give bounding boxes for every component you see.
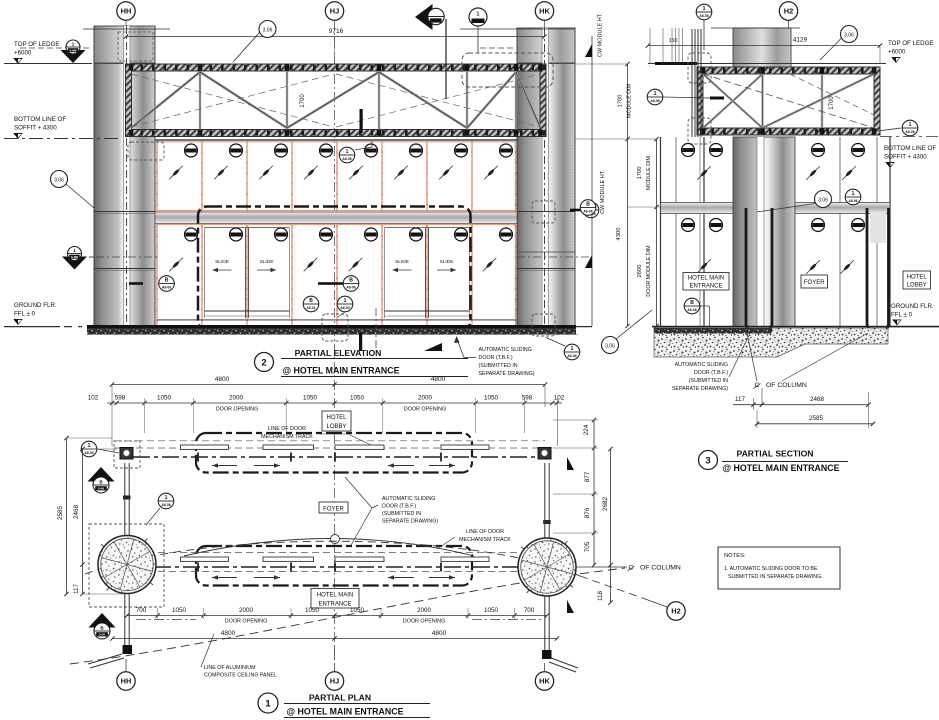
svg-text:3.06: 3.06 [54,178,64,184]
svg-text:(SUBMITTED IN: (SUBMITTED IN [689,378,728,384]
svg-text:OF COLUMN: OF COLUMN [766,382,807,389]
svg-text:FFL ± 0: FFL ± 0 [14,311,36,318]
svg-text:2000: 2000 [229,395,244,402]
svg-text:700: 700 [136,607,147,614]
svg-text:LOBBY: LOBBY [907,283,927,289]
svg-text:3.06: 3.06 [818,198,828,204]
svg-text:DOOR (T.B.F.): DOOR (T.B.F.) [479,355,513,361]
svg-text:A6-06: A6-06 [687,308,696,312]
svg-text:LINE OF DOOR: LINE OF DOOR [466,529,504,535]
svg-text:117: 117 [735,396,746,403]
svg-text:TOP OF LEDGE: TOP OF LEDGE [14,41,60,48]
svg-text:SEPARATE DRAWING): SEPARATE DRAWING) [672,386,728,392]
svg-text:4800: 4800 [215,376,230,383]
svg-text:1700: 1700 [300,94,306,108]
svg-text:SEPARATE DRAWING): SEPARATE DRAWING) [382,519,438,525]
svg-text:LOBBY: LOBBY [326,424,346,430]
svg-text:COMPOSITE CEILING PANEL: COMPOSITE CEILING PANEL [204,673,277,679]
svg-text:@ HOTEL MAIN ENTRANCE: @ HOTEL MAIN ENTRANCE [723,463,840,473]
svg-text:GROUND FLR.: GROUND FLR. [891,303,934,310]
svg-text:HH: HH [121,7,132,16]
svg-text:HJ: HJ [330,677,339,686]
svg-text:598: 598 [522,395,533,402]
svg-text:A6-06: A6-06 [342,157,351,161]
svg-text:2468: 2468 [810,396,825,403]
svg-text:1: 1 [165,495,168,501]
svg-text:1: 1 [72,41,75,46]
svg-text:HOTEL: HOTEL [326,415,347,421]
svg-text:CW MODULE HT.: CW MODULE HT. [600,170,606,214]
svg-text:1: 1 [909,122,912,128]
svg-text:HOTEL MAIN: HOTEL MAIN [688,276,724,282]
svg-text:1: 1 [571,346,574,352]
svg-text:117: 117 [73,583,80,594]
svg-text:PARTIAL PLAN: PARTIAL PLAN [309,693,371,703]
svg-text:SOFFIT + 4300: SOFFIT + 4300 [14,125,57,132]
svg-text:1: 1 [654,91,657,97]
svg-text:2000: 2000 [239,607,254,614]
svg-text:H2: H2 [671,607,680,616]
svg-text:SUBMITTED IN SEPARATE DRAWING.: SUBMITTED IN SEPARATE DRAWING. [728,574,823,580]
svg-text:A6-06: A6-06 [650,99,659,103]
svg-text:DOOR (T.B.F.): DOOR (T.B.F.) [694,370,728,376]
svg-text:SEPARATE DRAWING): SEPARATE DRAWING) [479,371,535,377]
svg-text:B: B [165,278,169,284]
svg-text:B: B [586,202,590,208]
svg-text:FOYER: FOYER [804,280,825,286]
svg-text:2585: 2585 [57,506,64,521]
svg-text:ENTRANCE: ENTRANCE [689,284,722,290]
svg-text:102: 102 [88,395,99,402]
svg-text:C: C [629,565,634,572]
svg-text:+6000: +6000 [888,49,906,56]
svg-text:@ HOTEL MAIN ENTRANCE: @ HOTEL MAIN ENTRANCE [283,366,400,376]
svg-text:3.06: 3.06 [605,344,615,350]
svg-text:DOOR OPENING: DOOR OPENING [216,407,259,413]
svg-text:SLIDE: SLIDE [215,259,229,265]
svg-text:GROUND FLR.: GROUND FLR. [14,302,57,309]
svg-text:4800: 4800 [221,630,236,637]
svg-text:LINE OF ALUMINIUM: LINE OF ALUMINIUM [204,665,256,671]
svg-text:A6-06: A6-06 [162,285,171,289]
svg-text:MECHANISM TRACK: MECHANISM TRACK [459,537,511,543]
svg-text:A5-31: A5-31 [306,306,315,310]
svg-text:SLIDE: SLIDE [440,259,454,265]
svg-text:1050: 1050 [484,607,499,614]
svg-text:HK: HK [539,677,550,686]
svg-text:4800: 4800 [431,376,446,383]
svg-text:MECHANISM TRACK: MECHANISM TRACK [261,434,313,440]
svg-text:4129: 4129 [793,37,808,44]
svg-text:1: 1 [703,6,706,12]
svg-text:BOTTOM LINE OF: BOTTOM LINE OF [14,116,66,123]
svg-text:2000: 2000 [418,395,433,402]
svg-text:A6-06: A6-06 [699,14,708,18]
svg-text:1: 1 [265,699,271,710]
svg-text:1. AUTOMATIC SLIDING DOOR TO B: 1. AUTOMATIC SLIDING DOOR TO BE [724,566,818,572]
svg-text:4800: 4800 [432,630,447,637]
svg-text:A6-06: A6-06 [161,503,170,507]
svg-text:HOTEL: HOTEL [907,275,928,281]
svg-text:B: B [309,298,313,304]
svg-text:5-05: 5-05 [99,633,105,637]
svg-text:1050: 1050 [157,395,172,402]
svg-text:A6-06: A6-06 [583,209,592,213]
svg-text:1: 1 [344,298,347,304]
svg-text:2000: 2000 [417,607,432,614]
svg-text:HOTEL MAIN: HOTEL MAIN [317,593,353,599]
svg-text:9716: 9716 [329,28,344,35]
svg-text:DOOR (T.B.F.): DOOR (T.B.F.) [382,504,416,510]
svg-text:1050: 1050 [350,395,365,402]
svg-text:HK: HK [539,7,550,16]
svg-text:CW MODULE HT.: CW MODULE HT. [598,13,604,57]
svg-text:1700: 1700 [637,167,643,180]
svg-text:DOOR MODULE DIM: DOOR MODULE DIM [646,245,652,296]
svg-text:1: 1 [852,191,855,197]
svg-text:700: 700 [524,607,535,614]
svg-text:NOTES:: NOTES: [724,553,746,559]
svg-text:DOOR OPENING: DOOR OPENING [404,407,447,413]
svg-text:BOTTOM LINE OF: BOTTOM LINE OF [884,145,936,152]
svg-text:1700: 1700 [618,95,624,108]
svg-text:2: 2 [261,358,266,369]
svg-text:SLIDE: SLIDE [395,259,409,265]
svg-text:118: 118 [597,590,604,601]
svg-text:4300: 4300 [616,228,622,241]
svg-text:A6-06: A6-06 [848,199,857,203]
svg-text:(SUBMITTED IN: (SUBMITTED IN [479,363,518,369]
svg-text:5-M6: 5-M6 [69,48,76,52]
svg-text:B: B [690,300,694,306]
svg-text:3: 3 [705,456,710,467]
svg-text:1: 1 [477,12,480,18]
svg-text:876: 876 [584,507,591,518]
svg-text:1050: 1050 [303,395,318,402]
svg-text:ENTRANCE: ENTRANCE [318,602,351,608]
svg-text:1050: 1050 [484,395,499,402]
svg-text:MODULE DIM: MODULE DIM [627,84,633,118]
svg-text:H2: H2 [784,7,793,16]
svg-text:3.06: 3.06 [263,28,273,34]
svg-text:3.06: 3.06 [844,33,854,39]
svg-text:A6-06: A6-06 [346,285,355,289]
svg-text:TOP OF LEDGE: TOP OF LEDGE [888,40,934,47]
svg-text:LINE OF DOOR: LINE OF DOOR [268,426,306,432]
svg-text:A6-06: A6-06 [905,130,914,134]
svg-text:DOOR OPENING: DOOR OPENING [403,619,446,625]
svg-text:PARTIAL SECTION: PARTIAL SECTION [736,449,813,459]
svg-text:102: 102 [554,395,565,402]
svg-text:5-06: 5-06 [98,487,104,491]
svg-text:PARTIAL ELEVATION: PARTIAL ELEVATION [295,348,382,358]
svg-text:A6-05: A6-05 [84,451,93,455]
svg-text:AUTOMATIC SLIDING: AUTOMATIC SLIDING [675,362,728,368]
svg-text:2585: 2585 [809,415,824,422]
svg-text:2600: 2600 [637,265,643,278]
svg-text:+6000: +6000 [14,50,32,57]
svg-text:2682: 2682 [602,497,609,512]
svg-text:598: 598 [115,395,126,402]
svg-text:1050: 1050 [350,607,365,614]
svg-text:HJ: HJ [330,7,339,16]
svg-text:5-M6: 5-M6 [71,255,78,259]
svg-text:A6-06: A6-06 [567,354,576,358]
svg-text:(SUBMITTED IN: (SUBMITTED IN [382,511,421,517]
svg-text:1: 1 [73,248,76,253]
svg-text:A6-09: A6-09 [340,306,349,310]
svg-text:FFL ± 0: FFL ± 0 [891,312,913,319]
svg-text:AUTOMATIC SLIDING: AUTOMATIC SLIDING [479,347,532,353]
svg-text:SLIDE: SLIDE [260,259,274,265]
svg-text:877: 877 [584,471,591,482]
svg-text:2468: 2468 [73,505,80,520]
svg-text:C: C [755,382,760,389]
svg-text:1: 1 [346,149,349,155]
svg-text:224: 224 [583,424,590,435]
svg-text:@ HOTEL MAIN ENTRANCE: @ HOTEL MAIN ENTRANCE [287,707,404,717]
svg-text:HH: HH [121,677,132,686]
svg-text:FOYER: FOYER [323,506,344,512]
svg-text:AUTOMATIC SLIDING: AUTOMATIC SLIDING [382,496,435,502]
svg-text:1050: 1050 [172,607,187,614]
svg-text:1050: 1050 [305,607,320,614]
svg-text:MODULE DIM: MODULE DIM [646,156,652,190]
svg-text:1700: 1700 [829,96,835,110]
svg-text:B: B [349,278,353,284]
svg-text:1: 1 [88,443,91,449]
svg-text:705: 705 [584,541,591,552]
svg-text:150: 150 [669,38,678,44]
svg-text:OF COLUMN: OF COLUMN [640,565,681,572]
svg-text:DOOR OPENING: DOOR OPENING [225,619,268,625]
